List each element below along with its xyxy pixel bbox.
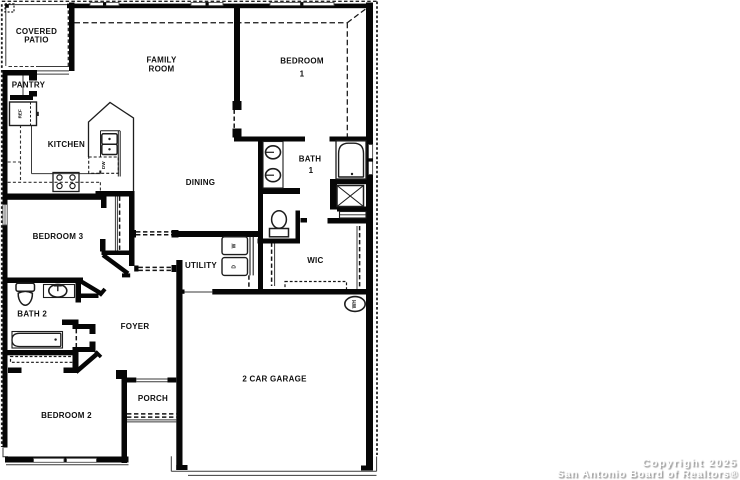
svg-text:UTILITY: UTILITY — [185, 261, 217, 270]
svg-text:1: 1 — [309, 166, 314, 175]
svg-text:San Antonio Board of Realtors®: San Antonio Board of Realtors® — [557, 469, 738, 480]
svg-text:PORCH: PORCH — [138, 394, 168, 403]
svg-text:PANTRY: PANTRY — [12, 80, 46, 89]
svg-text:DINING: DINING — [186, 178, 216, 187]
svg-text:BATH: BATH — [299, 154, 322, 163]
svg-text:BEDROOM 3: BEDROOM 3 — [33, 232, 84, 241]
svg-text:ROOM: ROOM — [149, 64, 175, 73]
svg-text:Copyright 2025: Copyright 2025 — [642, 458, 737, 469]
svg-text:DW: DW — [101, 161, 106, 169]
svg-text:REF: REF — [18, 109, 23, 118]
svg-text:W: W — [232, 243, 238, 248]
svg-text:FAMILY: FAMILY — [146, 55, 177, 64]
svg-text:2 CAR GARAGE: 2 CAR GARAGE — [242, 374, 307, 383]
svg-text:WH: WH — [352, 300, 358, 309]
svg-text:BATH 2: BATH 2 — [17, 309, 47, 318]
svg-text:1: 1 — [300, 69, 305, 78]
svg-text:BEDROOM 2: BEDROOM 2 — [41, 411, 92, 420]
svg-text:WIC: WIC — [307, 256, 323, 265]
svg-text:KITCHEN: KITCHEN — [48, 140, 85, 149]
svg-text:FOYER: FOYER — [121, 322, 150, 331]
svg-text:PATIO: PATIO — [24, 35, 49, 44]
svg-text:BEDROOM: BEDROOM — [280, 56, 324, 65]
svg-text:D: D — [232, 265, 238, 269]
